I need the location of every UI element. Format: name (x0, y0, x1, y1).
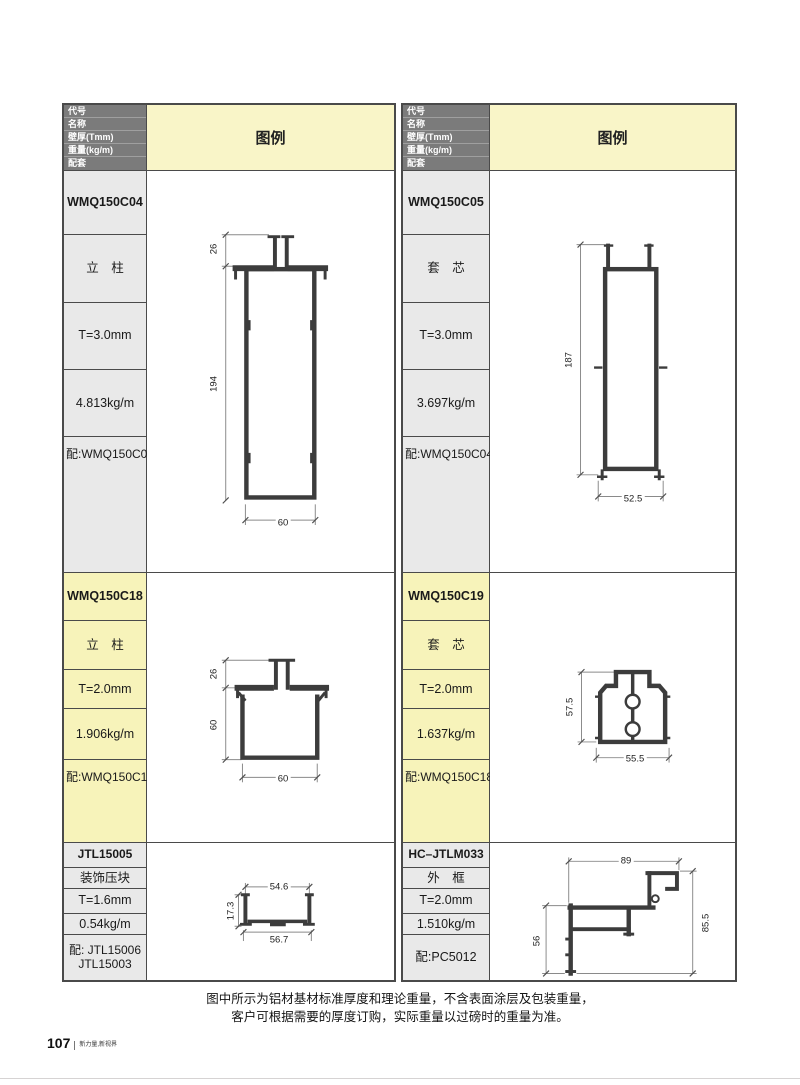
profile-block-jtl15005: JTL15005 装饰压块 T=1.6mm 0.54kg/m 配: JTL150… (64, 842, 394, 980)
profile-block-wmq150c04: WMQ150C04 立 柱 T=3.0mm 4.813kg/m 配:WMQ150… (64, 170, 394, 572)
spec-column: WMQ150C04 立 柱 T=3.0mm 4.813kg/m 配:WMQ150… (64, 171, 147, 572)
spec-column: HC–JTLM033 外 框 T=2.0mm 1.510kg/m 配:PC501… (403, 843, 490, 980)
spec-match-cell: 配:WMQ150C19 (64, 760, 146, 842)
dimension-ticks (223, 232, 318, 523)
profile-outline (241, 895, 313, 925)
spec-name-cell: 外 框 (403, 868, 489, 889)
dimension-ticks (579, 669, 672, 761)
spec-column: WMQ150C05 套 芯 T=3.0mm 3.697kg/m 配:WMQ150… (403, 171, 490, 572)
header-label-name: 名称 (403, 118, 489, 131)
spec-name-cell: 套 芯 (403, 235, 489, 303)
profile-block-wmq150c19: WMQ150C19 套 芯 T=2.0mm 1.637kg/m 配:WMQ150… (403, 572, 735, 842)
spec-match-cell: 配:PC5012 (403, 935, 489, 980)
spec-thickness-cell: T=3.0mm (403, 303, 489, 370)
spec-column: JTL15005 装饰压块 T=1.6mm 0.54kg/m 配: JTL150… (64, 843, 147, 980)
dimension-lines (577, 245, 664, 502)
header-label-weight: 重量(kg/m) (64, 144, 146, 157)
figure-cell: 187 52.5 (490, 171, 735, 572)
dim-label-top: 89 (619, 856, 634, 867)
figure-cell: 89 56 85.5 (490, 843, 735, 980)
page-footer: 107 新力量,新视界 (47, 1036, 117, 1050)
profile-outline (596, 672, 669, 742)
legend-cell: 图例 (147, 105, 394, 170)
spec-weight-cell: 1.637kg/m (403, 709, 489, 760)
profile-drawing-hc-jtlm033 (490, 843, 735, 980)
profile-drawing-wmq150c18 (147, 573, 394, 842)
header-label-code: 代号 (64, 105, 146, 118)
header-label-match: 配套 (403, 157, 489, 170)
profile-outline (567, 873, 677, 973)
figure-cell: 57.5 55.5 (490, 573, 735, 842)
footer-slogan: 新力量,新视界 (74, 1041, 117, 1050)
figure-cell: 54.6 17.3 56.7 (147, 843, 394, 980)
dim-label-height: 17.3 (226, 900, 237, 923)
dim-label-width: 52.5 (622, 494, 645, 505)
profile-block-wmq150c18: WMQ150C18 立 柱 T=2.0mm 1.906kg/m 配:WMQ150… (64, 572, 394, 842)
page-note-line1: 图中所示为铝材基材标准厚度和理论重量，不含表面涂层及包装重量， (0, 991, 800, 1009)
spec-match-cell: 配:WMQ150C18 (403, 760, 489, 842)
dimension-lines (222, 660, 317, 782)
header-label-column: 代号 名称 壁厚(Tmm) 重量(kg/m) 配套 (64, 105, 147, 170)
spec-code-cell: WMQ150C04 (64, 171, 146, 235)
figure-cell: 26 194 60 (147, 171, 394, 572)
header-label-thickness: 壁厚(Tmm) (64, 131, 146, 144)
profile-outline (595, 246, 666, 479)
spec-column: WMQ150C19 套 芯 T=2.0mm 1.637kg/m 配:WMQ150… (403, 573, 490, 842)
dim-label-width: 60 (276, 518, 291, 529)
spec-thickness-cell: T=2.0mm (403, 670, 489, 710)
profile-drawing-wmq150c05 (490, 171, 735, 572)
spec-weight-cell: 0.54kg/m (64, 914, 146, 936)
spec-thickness-cell: T=1.6mm (64, 889, 146, 914)
spec-code-cell: JTL15005 (64, 843, 146, 868)
spec-weight-cell: 1.510kg/m (403, 914, 489, 936)
spec-weight-cell: 1.906kg/m (64, 709, 146, 760)
dim-label-right: 85.5 (701, 912, 712, 935)
legend-cell: 图例 (490, 105, 735, 170)
header-label-weight: 重量(kg/m) (403, 144, 489, 157)
spec-code-cell: WMQ150C19 (403, 573, 489, 621)
dim-label-width: 60 (276, 774, 291, 785)
header-label-thickness: 壁厚(Tmm) (403, 131, 489, 144)
header-label-match: 配套 (64, 157, 146, 170)
dim-label-height: 57.5 (565, 696, 576, 719)
page-note-line2: 客户可根据需要的厚度订购，实际重量以过磅时的重量为准。 (0, 1009, 800, 1027)
dim-label-height: 187 (564, 350, 575, 370)
spec-thickness-cell: T=3.0mm (64, 303, 146, 370)
spec-code-cell: HC–JTLM033 (403, 843, 489, 868)
spec-name-cell: 立 柱 (64, 621, 146, 670)
header-label-code: 代号 (403, 105, 489, 118)
header-label-column: 代号 名称 壁厚(Tmm) 重量(kg/m) 配套 (403, 105, 490, 170)
dimension-ticks (223, 657, 320, 780)
spec-code-cell: WMQ150C05 (403, 171, 489, 235)
dimension-ticks (543, 858, 696, 976)
dim-label-height: 194 (209, 374, 220, 394)
dim-label-top: 54.6 (268, 882, 291, 893)
spec-name-cell: 套 芯 (403, 621, 489, 670)
spec-thickness-cell: T=2.0mm (403, 889, 489, 914)
profile-drawing-wmq150c19 (490, 573, 735, 842)
dim-label-top: 26 (209, 667, 220, 682)
profile-table-right: 代号 名称 壁厚(Tmm) 重量(kg/m) 配套 图例 WMQ150C05 套… (401, 103, 737, 982)
profile-table-left: 代号 名称 壁厚(Tmm) 重量(kg/m) 配套 图例 WMQ150C04 立… (62, 103, 396, 982)
table-header-left: 代号 名称 壁厚(Tmm) 重量(kg/m) 配套 图例 (64, 105, 394, 170)
dimension-ticks (578, 242, 667, 500)
spec-match-line2: JTL15003 (78, 958, 131, 972)
dim-label-width: 56.7 (268, 935, 291, 946)
profile-drawing-jtl15005 (147, 843, 394, 980)
header-label-name: 名称 (64, 118, 146, 131)
profile-outline (238, 660, 327, 757)
spec-match-cell: 配:WMQ150C04 (403, 437, 489, 572)
profile-block-wmq150c05: WMQ150C05 套 芯 T=3.0mm 3.697kg/m 配:WMQ150… (403, 170, 735, 572)
figure-cell: 26 60 60 (147, 573, 394, 842)
page-note: 图中所示为铝材基材标准厚度和理论重量，不含表面涂层及包装重量， 客户可根据需要的… (0, 991, 800, 1026)
spec-match-line1: 配: JTL15006 (69, 944, 141, 958)
spec-weight-cell: 3.697kg/m (403, 370, 489, 438)
spec-column: WMQ150C18 立 柱 T=2.0mm 1.906kg/m 配:WMQ150… (64, 573, 147, 842)
spec-match-cell: 配: JTL15006 JTL15003 (64, 935, 146, 980)
spec-thickness-cell: T=2.0mm (64, 670, 146, 710)
profile-drawing-wmq150c04 (147, 171, 394, 572)
dim-label-height: 60 (209, 718, 220, 733)
spec-weight-cell: 4.813kg/m (64, 370, 146, 438)
dim-label-width: 55.5 (624, 754, 647, 765)
dim-label-left: 56 (532, 934, 543, 949)
spec-code-cell: WMQ150C18 (64, 573, 146, 621)
spec-name-cell: 装饰压块 (64, 868, 146, 889)
catalog-page: 代号 名称 壁厚(Tmm) 重量(kg/m) 配套 图例 WMQ150C04 立… (0, 0, 800, 1085)
spec-match-cell: 配:WMQ150C05 (64, 437, 146, 572)
page-number: 107 (47, 1036, 70, 1050)
table-header-right: 代号 名称 壁厚(Tmm) 重量(kg/m) 配套 图例 (403, 105, 735, 170)
profile-outline (236, 237, 326, 498)
bottom-rule (0, 1078, 800, 1079)
profile-block-hc-jtlm033: HC–JTLM033 外 框 T=2.0mm 1.510kg/m 配:PC501… (403, 842, 735, 980)
dim-label-top: 26 (209, 242, 220, 257)
spec-name-cell: 立 柱 (64, 235, 146, 303)
